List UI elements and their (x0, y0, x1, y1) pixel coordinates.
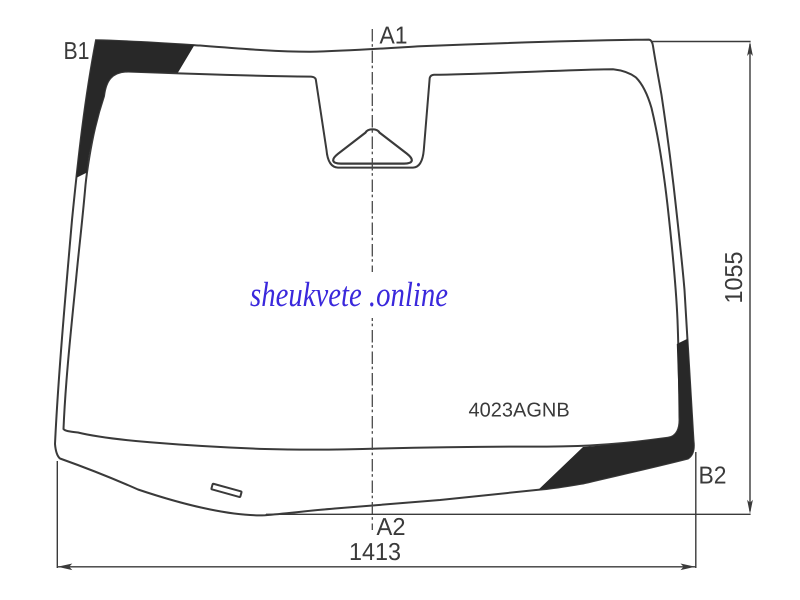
svg-text:1055: 1055 (721, 252, 748, 304)
svg-text:A1: A1 (380, 23, 408, 50)
svg-text:4023AGNB: 4023AGNB (469, 400, 570, 422)
svg-text:sheukvete .online: sheukvete .online (250, 275, 448, 314)
svg-text:1413: 1413 (349, 539, 401, 566)
svg-text:B1: B1 (64, 38, 90, 65)
svg-text:B2: B2 (699, 463, 727, 490)
svg-text:A2: A2 (377, 514, 406, 541)
